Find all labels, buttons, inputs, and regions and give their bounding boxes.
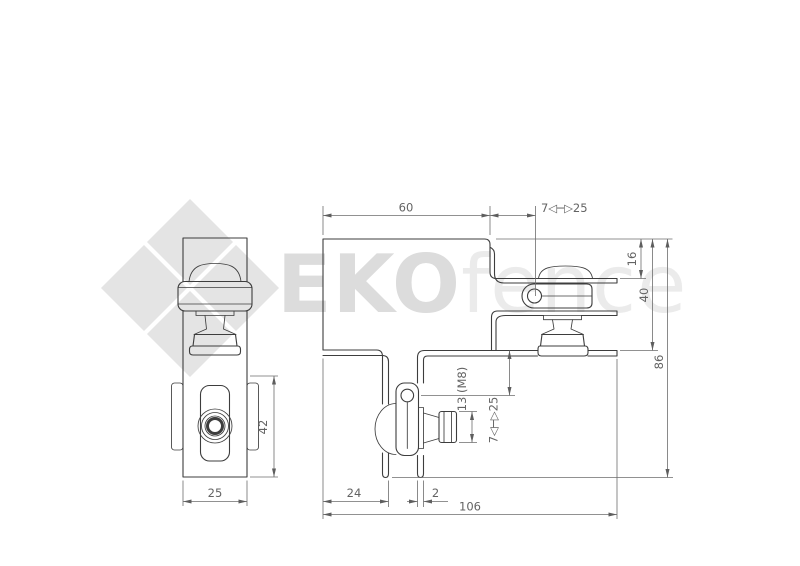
side-pivot-plate bbox=[201, 386, 230, 462]
brand-wordmark-bold: EKO bbox=[277, 238, 461, 331]
dim-label-height-40: 40 bbox=[637, 288, 651, 303]
front-lower-pivot-hole bbox=[401, 389, 414, 402]
side-bolt-core bbox=[208, 419, 223, 434]
technical-drawing-canvas: EKOfence bbox=[0, 0, 800, 566]
side-bolt-washer-outer bbox=[198, 409, 232, 443]
dim-label-total-width: 106 bbox=[459, 500, 481, 514]
dim-label-height-86: 86 bbox=[652, 355, 666, 370]
dim-label-offset-16: 16 bbox=[625, 252, 639, 267]
front-lower-dome bbox=[375, 404, 396, 455]
side-bolt-washer-inner bbox=[202, 413, 229, 440]
side-right-ear bbox=[247, 383, 259, 450]
front-lower-pivot-assembly bbox=[375, 383, 457, 456]
dim-label-body-height: 42 bbox=[256, 420, 270, 435]
dim-label-side-width: 25 bbox=[208, 486, 223, 500]
dim-label-thickness: 2 bbox=[432, 486, 439, 500]
dim-label-lower-range: 7◁─▷25 bbox=[487, 397, 501, 444]
front-right-tab-and-base bbox=[418, 351, 618, 478]
front-bolt-washer bbox=[419, 408, 424, 449]
front-bolt-nut bbox=[439, 412, 457, 443]
dim-label-top-width: 60 bbox=[399, 201, 414, 215]
dim-label-leg-offset: 24 bbox=[347, 486, 362, 500]
dim-label-top-range: 7◁─▷25 bbox=[541, 201, 588, 215]
side-left-ear bbox=[172, 383, 184, 450]
side-body bbox=[172, 383, 259, 461]
dim-label-nut-size: 13 (M8) bbox=[455, 367, 469, 412]
